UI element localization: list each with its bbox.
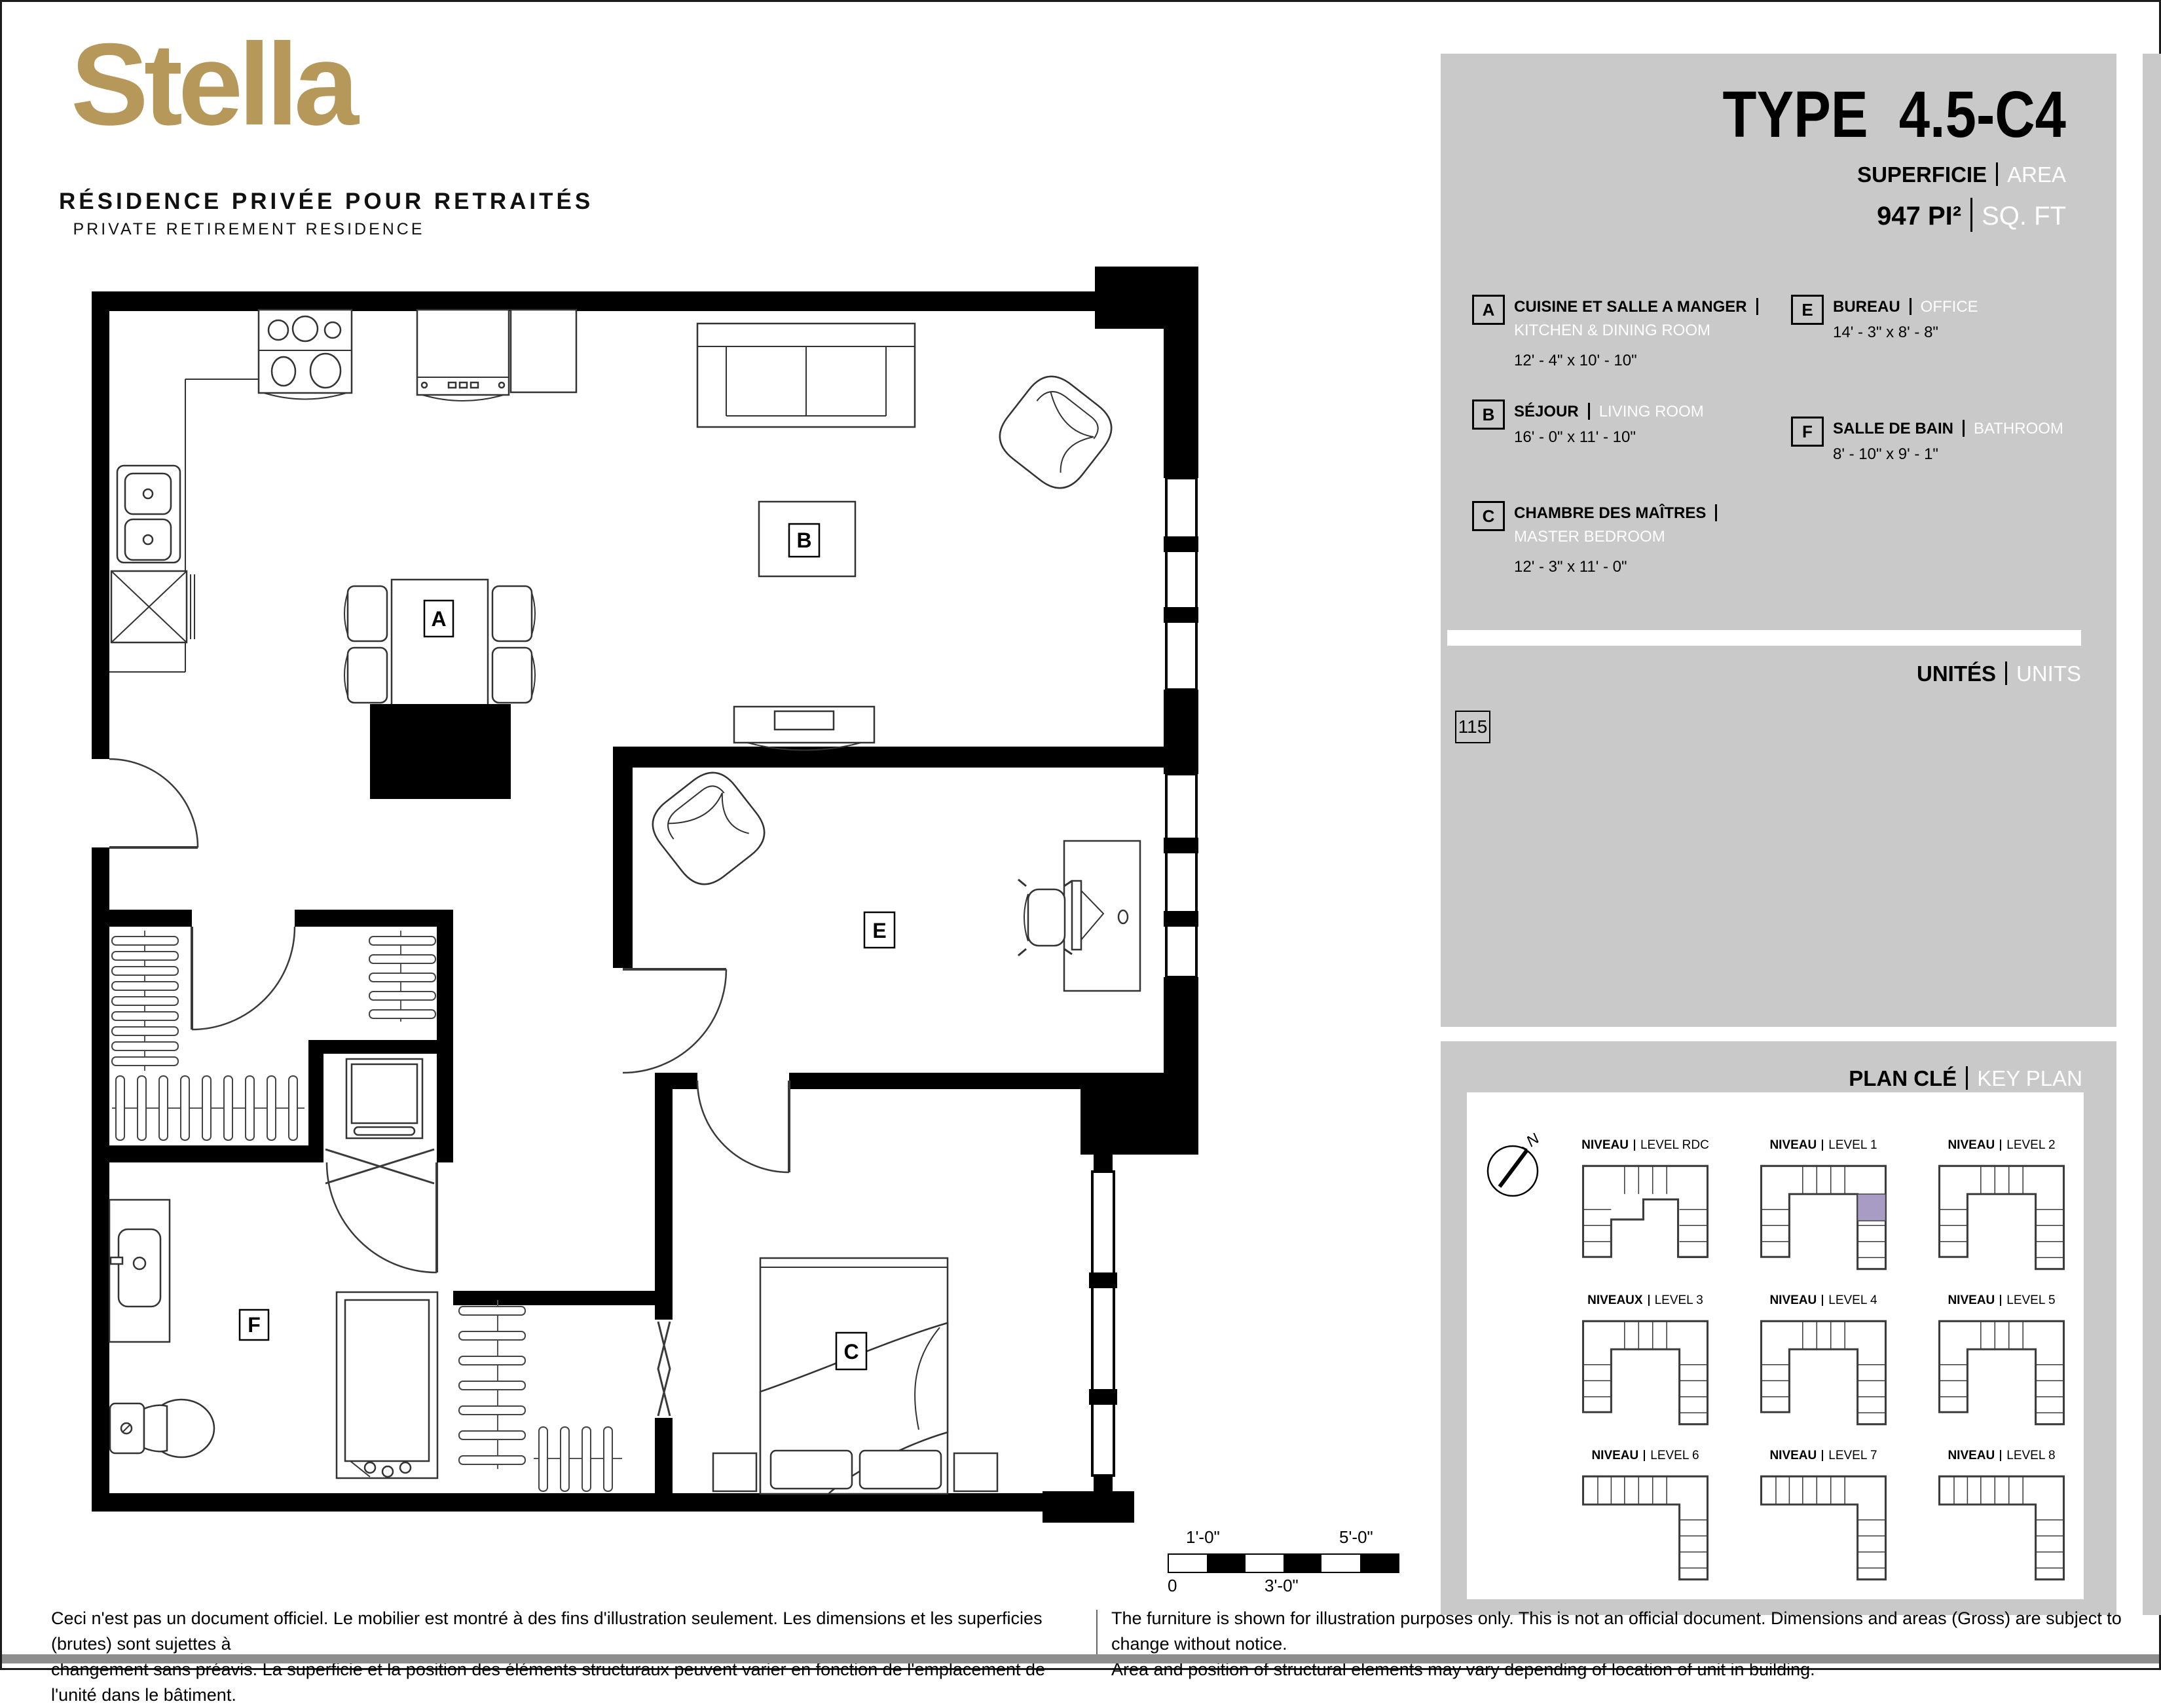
disclaimer-en: The furniture is shown for illustration …	[1111, 1606, 2133, 1682]
legend-c-fr: CHAMBRE DES MAÎTRES	[1514, 504, 1706, 522]
legend-e-dims: 14' - 3" x 8' - 8"	[1833, 324, 1938, 341]
scale-segment	[1246, 1555, 1284, 1572]
keyplan-level-label: NIVEAULEVEL RDC	[1568, 1138, 1722, 1153]
divider-bar	[1715, 504, 1717, 521]
area-label-fr: SUPERFICIE	[1857, 162, 1987, 187]
legend-a-en: KITCHEN & DINING ROOM	[1514, 322, 1710, 339]
legend-a-dims: 12' - 4" x 10' - 10"	[1514, 352, 1637, 369]
keyplan-level-label: NIVEAULEVEL 6	[1568, 1449, 1722, 1463]
legend-b-en: LIVING ROOM	[1599, 403, 1704, 420]
window-mullion	[1089, 1389, 1117, 1405]
divider-bar	[1963, 420, 1965, 437]
divider-bar	[1910, 298, 1912, 315]
legend-f-en: BATHROOM	[1974, 420, 2063, 437]
mini-building-plan	[1568, 1310, 1722, 1435]
unit-number-badge: 115	[1455, 711, 1490, 743]
scale-segment	[1321, 1555, 1359, 1572]
dining-chair	[344, 648, 387, 703]
disclaimer-en-line1: The furniture is shown for illustration …	[1111, 1608, 2122, 1654]
nightstand	[954, 1453, 997, 1491]
mini-building-plan	[1925, 1310, 2078, 1435]
legend-b-fr: SÉJOUR	[1514, 403, 1579, 420]
nightstand	[713, 1453, 756, 1491]
room-label-b: B	[796, 529, 811, 552]
keyplan-level-label: NIVEAULEVEL 7	[1746, 1449, 1900, 1463]
edge-strip	[2143, 54, 2161, 1615]
living-room	[697, 324, 1122, 751]
divider-bar	[1756, 298, 1758, 315]
desk-icon	[1064, 841, 1140, 991]
unit-type-title: TYPE 4.5-C4	[1723, 77, 2066, 153]
mini-building-plan	[1746, 1155, 1900, 1280]
dining-chair	[344, 586, 387, 641]
keyplan-level-label: NIVEAULEVEL 1	[1746, 1138, 1900, 1153]
legend-letter-b: B	[1472, 399, 1505, 430]
double-sink-icon	[117, 466, 180, 563]
legend-c-dims: 12' - 3" x 11' - 0"	[1514, 558, 1627, 576]
divider-bar	[1966, 1066, 1968, 1090]
highlighted-unit	[1858, 1194, 1886, 1221]
scale-label-1ft: 1'-0"	[1186, 1527, 1220, 1548]
bathroom	[109, 1200, 437, 1478]
mini-building-plan	[1568, 1466, 1722, 1590]
living-room-window	[1166, 478, 1196, 690]
footer-divider	[1096, 1610, 1098, 1658]
floor-plan: A B C E F	[43, 128, 1398, 1523]
office-door	[623, 969, 726, 1073]
room-labels: A B C E F	[240, 524, 895, 1369]
mini-building-plan	[1925, 1466, 2078, 1590]
legend-e-en: OFFICE	[1921, 298, 1978, 316]
scale-label-3ft: 3'-0"	[1265, 1576, 1299, 1596]
floorplan-sheet: { "brand": { "name": "Stella", "tagline_…	[0, 0, 2161, 1670]
keyplan-level-label: NIVEAULEVEL 8	[1925, 1449, 2078, 1463]
scale-segment	[1360, 1555, 1398, 1572]
units-label-en: UNITS	[2016, 661, 2081, 686]
legend-a-fr: CUISINE ET SALLE A MANGER	[1514, 298, 1747, 316]
units-heading: UNITÉSUNITS	[1441, 661, 2081, 686]
legend-letter-a: A	[1472, 295, 1505, 325]
dining-area	[344, 580, 535, 705]
scale-bar: 1'-0" 5'-0" 0 3'-0"	[1168, 1527, 1403, 1599]
vanity-sink-icon	[109, 1200, 170, 1342]
section-divider	[1447, 630, 2081, 646]
compass-n-label: N	[1523, 1133, 1543, 1151]
window-mullion	[1164, 536, 1198, 552]
mini-building-plan	[1925, 1155, 2078, 1280]
legend-b-dims: 16' - 0" x 11' - 10"	[1514, 428, 1636, 446]
dishwasher-icon	[111, 571, 194, 642]
keyplan-heading: PLAN CLÉKEY PLAN	[1441, 1066, 2082, 1091]
mini-building-plan	[1568, 1155, 1722, 1280]
window-mullion	[1164, 607, 1198, 623]
office	[642, 762, 1140, 991]
keyplan-level-label: NIVEAULEVEL 4	[1746, 1293, 1900, 1308]
area-unit-en: SQ. FT	[1982, 202, 2066, 231]
oven-icon	[417, 310, 509, 401]
scale-label-0: 0	[1168, 1576, 1177, 1596]
brand-logo: Stella	[71, 26, 354, 143]
legend-letter-f: F	[1791, 417, 1824, 447]
scale-bar-segments	[1168, 1553, 1399, 1573]
room-label-e: E	[872, 919, 886, 942]
legend-letter-c: C	[1472, 501, 1505, 531]
divider-bar	[2005, 661, 2007, 685]
toilet-icon	[110, 1400, 214, 1457]
armchair-icon	[642, 762, 775, 895]
legend-item-f: SALLE DE BAINBATHROOM 8' - 10" x 9' - 1"	[1833, 420, 2063, 471]
room-label-c: C	[843, 1340, 859, 1364]
disclaimer-fr-line1: Ceci n'est pas un document officiel. Le …	[51, 1608, 1043, 1654]
dining-chair	[492, 648, 535, 703]
keyplan-title-en: KEY PLAN	[1977, 1066, 2082, 1090]
mini-building-plan	[1746, 1466, 1900, 1590]
divider-bar	[1588, 403, 1590, 420]
keyplan-level-label: NIVEAULEVEL 5	[1925, 1293, 2078, 1308]
scale-segment	[1169, 1555, 1207, 1572]
type-value: 4.5-C4	[1899, 78, 2066, 151]
area-label-en: AREA	[2007, 162, 2066, 187]
tv-console-icon	[734, 707, 874, 751]
legend-f-fr: SALLE DE BAIN	[1833, 420, 1953, 437]
washer-icon	[346, 1059, 422, 1138]
keyplan-level-label: NIVEAULEVEL 2	[1925, 1138, 2078, 1153]
stove-icon	[259, 310, 352, 399]
disclaimer-fr-line2: changement sans préavis. La superficie e…	[51, 1660, 1045, 1705]
type-label: TYPE	[1723, 78, 1868, 151]
legend-item-e: BUREAUOFFICE 14' - 3" x 8' - 8"	[1833, 298, 1978, 349]
room-label-f: F	[248, 1313, 261, 1337]
north-compass-icon: N	[1481, 1133, 1553, 1205]
window-mullion	[1164, 911, 1198, 927]
scale-segment	[1207, 1555, 1245, 1572]
office-window	[1166, 774, 1196, 977]
shower-icon	[337, 1292, 437, 1478]
structural-column	[370, 704, 511, 799]
legend-item-c: CHAMBRE DES MAÎTRES MASTER BEDROOM 12' -…	[1514, 504, 1726, 583]
scale-label-5ft: 5'-0"	[1339, 1527, 1373, 1548]
bedroom	[713, 1258, 997, 1494]
legend-c-en: MASTER BEDROOM	[1514, 528, 1665, 546]
closet-door	[192, 927, 295, 1030]
divider-bar	[1970, 198, 1972, 232]
bedroom-closet	[459, 1300, 622, 1491]
divider-bar	[1996, 162, 1998, 186]
dining-table	[392, 580, 488, 705]
entry-door	[109, 759, 198, 847]
area-unit-fr: PI²	[1928, 202, 1961, 231]
dining-chair	[492, 586, 535, 641]
bifold-door-laundry	[325, 1149, 434, 1183]
bed-icon	[760, 1258, 948, 1494]
window-mullion	[1164, 838, 1198, 853]
bedroom-door	[697, 1081, 789, 1172]
armchair-icon	[989, 366, 1122, 498]
room-label-a: A	[431, 607, 446, 631]
window-mullion	[1089, 1272, 1117, 1288]
legend-f-dims: 8' - 10" x 9' - 1"	[1833, 445, 1938, 463]
area-value-line: 947 PI²SQ. FT	[1877, 202, 2066, 232]
legend-letter-e: E	[1791, 295, 1824, 325]
legend-item-b: SÉJOURLIVING ROOM 16' - 0" x 11' - 10"	[1514, 403, 1704, 454]
kitchen-cabinet	[511, 310, 576, 392]
mini-building-plan	[1746, 1310, 1900, 1435]
legend-e-fr: BUREAU	[1833, 298, 1900, 316]
keyplan-level-label: NIVEAUXLEVEL 3	[1568, 1293, 1722, 1308]
area-value: 947	[1877, 202, 1921, 231]
sofa-icon	[697, 324, 915, 427]
units-label-fr: UNITÉS	[1917, 661, 1996, 686]
keyplan-title-fr: PLAN CLÉ	[1849, 1066, 1957, 1090]
bifold-door-bedroom-closet	[658, 1322, 670, 1416]
bedroom-window	[1092, 1172, 1114, 1476]
bottom-bar	[2, 1654, 2159, 1663]
scale-segment	[1284, 1555, 1321, 1572]
area-heading: SUPERFICIEAREA	[1857, 162, 2066, 187]
legend-item-a: CUISINE ET SALLE A MANGER KITCHEN & DINI…	[1514, 298, 1767, 377]
